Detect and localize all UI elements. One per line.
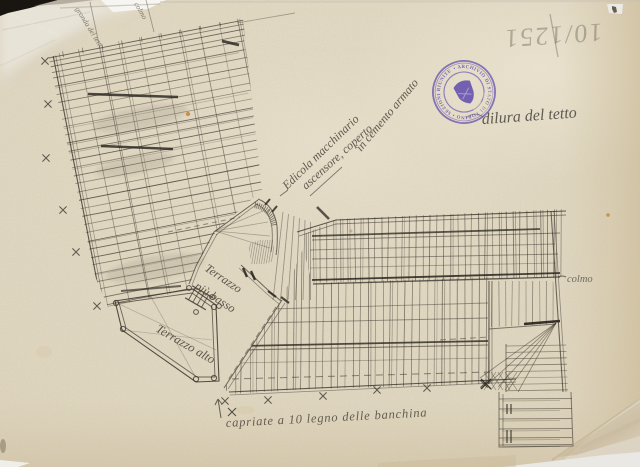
svg-text:colmo: colmo — [567, 274, 593, 285]
